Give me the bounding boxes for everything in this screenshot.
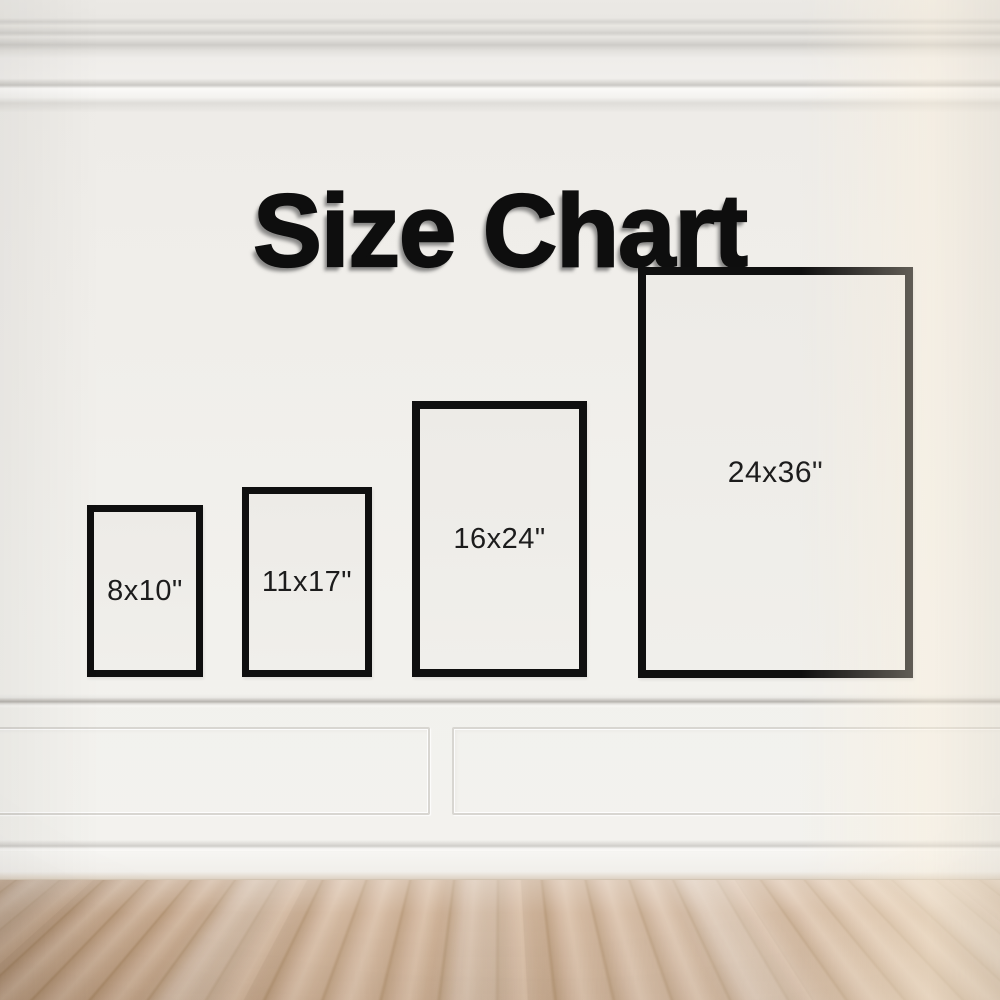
size-frame-16x24: 16x24" <box>412 401 587 677</box>
wainscot-panel-left <box>0 727 430 815</box>
size-frame-11x17: 11x17" <box>242 487 372 677</box>
crown-molding <box>0 0 1000 112</box>
size-label: 8x10" <box>107 575 183 608</box>
baseboard-groove <box>0 840 1000 852</box>
size-frame-24x36: 24x36" <box>638 267 913 678</box>
size-label: 11x17" <box>262 566 352 599</box>
wood-floor <box>0 880 1000 1000</box>
size-chart-scene: Size Chart 8x10" 11x17" 16x24" 24x36" <box>0 0 1000 1000</box>
baseboard <box>0 852 1000 880</box>
floor-planks <box>0 880 1000 1000</box>
size-label: 24x36" <box>728 456 823 490</box>
chair-rail-molding <box>0 694 1000 708</box>
size-label: 16x24" <box>453 523 545 556</box>
wainscot-panel-right <box>452 727 1000 815</box>
size-frame-8x10: 8x10" <box>87 505 203 677</box>
